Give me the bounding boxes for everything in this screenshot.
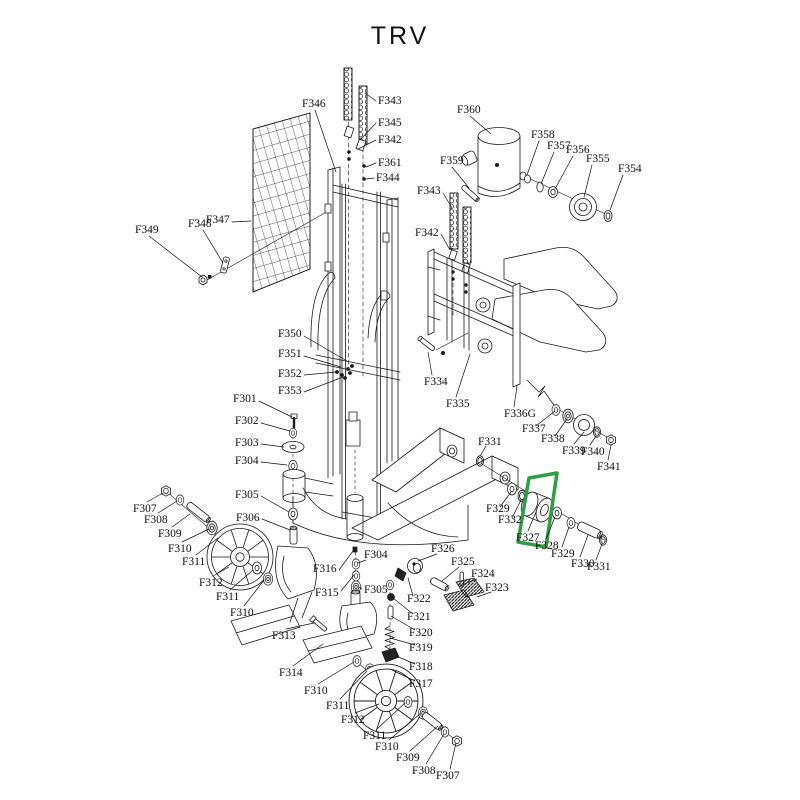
part-label-F336G: F336G — [504, 408, 536, 420]
part-label-F302: F302 — [235, 415, 259, 427]
part-label-F361: F361 — [378, 157, 402, 169]
leader-line-F360 — [470, 116, 491, 134]
part-label-F347: F347 — [206, 214, 230, 226]
leader-line-F309 — [410, 726, 438, 751]
part-label-F355: F355 — [586, 153, 610, 165]
part-label-F311: F311 — [182, 556, 205, 568]
leader-line-F305 — [261, 496, 289, 512]
leader-line-F351 — [304, 356, 341, 367]
part-label-F304: F304 — [235, 455, 259, 467]
exploded-parts-diagram: F346F343F345F342F361F344F360F359F358F357… — [0, 0, 800, 800]
leader-line-F307 — [450, 743, 456, 769]
leader-line-F331 — [596, 544, 602, 560]
part-label-F312: F312 — [199, 577, 223, 589]
part-label-F346: F346 — [302, 98, 326, 110]
part-label-F317: F317 — [409, 678, 433, 690]
part-label-F318: F318 — [409, 661, 433, 673]
part-label-F316: F316 — [313, 563, 337, 575]
part-label-F307: F307 — [436, 770, 460, 782]
part-label-F310: F310 — [304, 685, 328, 697]
part-label-F314: F314 — [279, 667, 303, 679]
leader-line-F336G — [514, 386, 517, 407]
part-label-F331: F331 — [587, 561, 611, 573]
leader-line-F359 — [452, 167, 469, 188]
handle-hoop-left — [311, 272, 335, 350]
pin-F359 — [461, 184, 480, 202]
leader-line-F330 — [580, 535, 588, 557]
leader-line-F310 — [318, 662, 354, 684]
part-label-F305: F305 — [364, 584, 388, 596]
part-label-F311: F311 — [216, 591, 239, 603]
part-label-F326: F326 — [431, 543, 455, 555]
fork-carriage — [428, 247, 617, 387]
diagram-page: TRV — [0, 0, 800, 800]
part-label-F309: F309 — [158, 528, 182, 540]
part-label-F313: F313 — [272, 630, 296, 642]
part-label-F343: F343 — [378, 95, 402, 107]
part-label-F335: F335 — [446, 398, 470, 410]
leader-line-F316 — [339, 551, 353, 570]
part-label-F304: F304 — [364, 549, 388, 561]
part-label-F359: F359 — [440, 155, 464, 167]
leader-line-F347 — [232, 221, 251, 222]
leader-line-F325 — [442, 567, 459, 581]
leader-line-F308 — [158, 501, 177, 513]
leader-line-F346 — [315, 110, 336, 172]
leader-line-F353 — [304, 377, 343, 392]
leader-line-F356 — [555, 156, 573, 189]
steer-wheel-assembly-center — [303, 602, 462, 746]
leader-line-F361 — [366, 163, 376, 167]
part-label-F325: F325 — [451, 556, 475, 568]
leader-line-F334 — [428, 352, 432, 375]
leader-line-F357 — [541, 152, 554, 184]
part-label-F338: F338 — [541, 433, 565, 445]
leader-line-F348 — [203, 230, 223, 263]
leader-line-F329 — [562, 527, 569, 547]
leader-line-F358 — [527, 141, 539, 175]
mast-bottom-bracket — [346, 420, 360, 446]
part-label-F306: F306 — [236, 512, 260, 524]
part-label-F343: F343 — [417, 185, 441, 197]
leader-line-F341 — [608, 445, 611, 460]
pulley-F355 — [570, 194, 597, 221]
part-label-F301: F301 — [233, 393, 257, 405]
part-label-F309: F309 — [396, 752, 420, 764]
part-label-F319: F319 — [409, 642, 433, 654]
leader-line-F354 — [610, 175, 623, 210]
pulley-parts-row — [520, 172, 612, 222]
leader-line-F342 — [441, 234, 450, 250]
caster-foot-center — [303, 626, 372, 663]
part-label-F340: F340 — [581, 446, 605, 458]
part-label-F334: F334 — [424, 376, 448, 388]
part-label-F352: F352 — [278, 368, 302, 380]
pedal-assembly — [382, 559, 484, 673]
mesh-mount-parts — [199, 257, 230, 285]
part-label-F305: F305 — [235, 489, 259, 501]
leader-line-F304 — [261, 462, 287, 465]
part-label-F341: F341 — [597, 461, 621, 473]
leader-line-F302 — [261, 423, 290, 431]
hydraulic-cylinder-assembly — [460, 128, 520, 203]
rod-F325 — [429, 577, 450, 592]
leader-line-F340 — [590, 436, 596, 445]
leader-line-F352 — [304, 372, 336, 375]
part-label-F344: F344 — [376, 172, 400, 184]
part-label-F303: F303 — [235, 437, 259, 449]
caster-bracket-left — [276, 546, 317, 599]
lever-F322 — [395, 568, 406, 581]
part-label-F320: F320 — [409, 627, 433, 639]
crossbar-bolts — [336, 365, 354, 380]
part-label-F308: F308 — [412, 765, 436, 777]
leader-line-F349 — [149, 236, 202, 277]
leader-line-F303 — [261, 444, 284, 447]
bolt-F313 — [310, 616, 328, 633]
leader-line-F308 — [426, 734, 444, 764]
part-label-F323: F323 — [485, 582, 509, 594]
part-label-F353: F353 — [278, 385, 302, 397]
part-label-F360: F360 — [457, 104, 481, 116]
part-label-F351: F351 — [278, 348, 302, 360]
part-label-F312: F312 — [341, 714, 365, 726]
leader-line-F326 — [418, 554, 437, 561]
leader-line-F335 — [456, 354, 470, 397]
part-label-F349: F349 — [135, 224, 159, 236]
leader-line-F344 — [366, 178, 374, 179]
part-label-F332: F332 — [498, 514, 522, 526]
part-label-F350: F350 — [278, 328, 302, 340]
part-label-F311: F311 — [326, 700, 349, 712]
leader-line-F306 — [262, 519, 290, 530]
part-label-F308: F308 — [144, 514, 168, 526]
leader-line-F355 — [584, 165, 592, 197]
part-label-F354: F354 — [618, 163, 642, 175]
leader-line-F309 — [172, 514, 190, 527]
leader-line-F307 — [147, 493, 163, 502]
part-label-F310: F310 — [168, 543, 192, 555]
part-label-F342: F342 — [378, 134, 402, 146]
part-label-F315: F315 — [315, 587, 339, 599]
leader-line-F310 — [182, 529, 209, 542]
part-label-F324: F324 — [471, 568, 495, 580]
part-label-F345: F345 — [378, 117, 402, 129]
part-label-F310: F310 — [230, 607, 254, 619]
left-parts-stack — [282, 414, 305, 544]
leader-line-F301 — [259, 401, 292, 417]
spring-F319 — [385, 626, 394, 650]
ball-F320 — [388, 594, 395, 601]
part-label-F322: F322 — [407, 593, 431, 605]
carriage-pin-parts — [417, 333, 468, 355]
part-label-F321: F321 — [407, 611, 431, 623]
block-F318 — [382, 648, 399, 662]
part-label-F331: F331 — [478, 436, 502, 448]
part-label-F342: F342 — [415, 227, 439, 239]
